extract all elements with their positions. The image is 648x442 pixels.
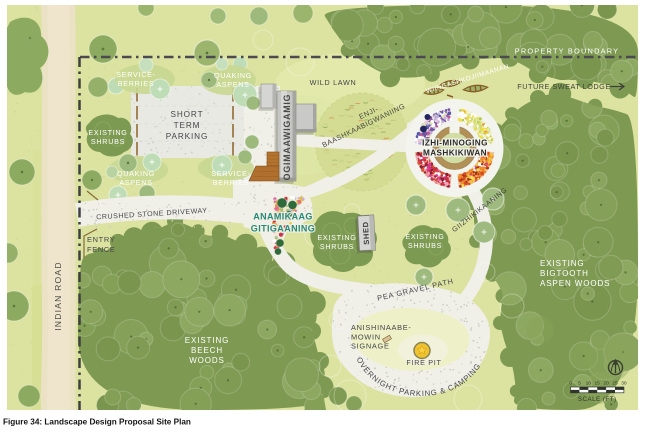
svg-text:25: 25: [612, 381, 618, 387]
svg-text:ENTRYFENCE: ENTRYFENCE: [87, 235, 116, 254]
svg-text:QUAKINGASPENS: QUAKINGASPENS: [214, 71, 252, 89]
svg-text:15: 15: [595, 381, 601, 387]
svg-text:EXISTINGSHRUBS: EXISTINGSHRUBS: [405, 232, 444, 250]
svg-text:SERVICE-BERRIES: SERVICE-BERRIES: [211, 169, 250, 187]
svg-text:SERVICE-BERRIES: SERVICE-BERRIES: [116, 70, 155, 88]
svg-text:SCALE (FT): SCALE (FT): [578, 396, 617, 403]
svg-text:10: 10: [586, 381, 592, 387]
svg-text:SHED: SHED: [361, 221, 371, 245]
svg-text:EXISTINGBEECHWOODS: EXISTINGBEECHWOODS: [185, 336, 230, 365]
svg-text:EXISTINGSHRUBS: EXISTINGSHRUBS: [317, 233, 356, 251]
svg-text:QUAKINGASPENS: QUAKINGASPENS: [117, 169, 155, 187]
svg-text:IZHI-MINOGINGMASHKIKIWAN: IZHI-MINOGINGMASHKIKIWAN: [422, 139, 488, 158]
svg-text:5: 5: [578, 381, 581, 387]
svg-text:WILD LAWN: WILD LAWN: [310, 78, 357, 87]
svg-text:FIRE PIT: FIRE PIT: [406, 358, 441, 367]
svg-text:FUTURE SWEAT LODGE: FUTURE SWEAT LODGE: [517, 82, 610, 91]
svg-text:EXISTINGSHRUBS: EXISTINGSHRUBS: [88, 128, 127, 146]
svg-text:Figure 34: Landscape Design Pr: Figure 34: Landscape Design Proposal Sit…: [3, 418, 191, 427]
svg-text:PROPERTY BOUNDARY: PROPERTY BOUNDARY: [515, 47, 620, 56]
svg-text:OGIMAAWIGAMIG: OGIMAAWIGAMIG: [282, 94, 292, 181]
svg-text:30: 30: [621, 381, 627, 387]
svg-text:INDIAN ROAD: INDIAN ROAD: [53, 261, 63, 331]
svg-text:0: 0: [569, 381, 572, 387]
svg-text:20: 20: [603, 381, 609, 387]
